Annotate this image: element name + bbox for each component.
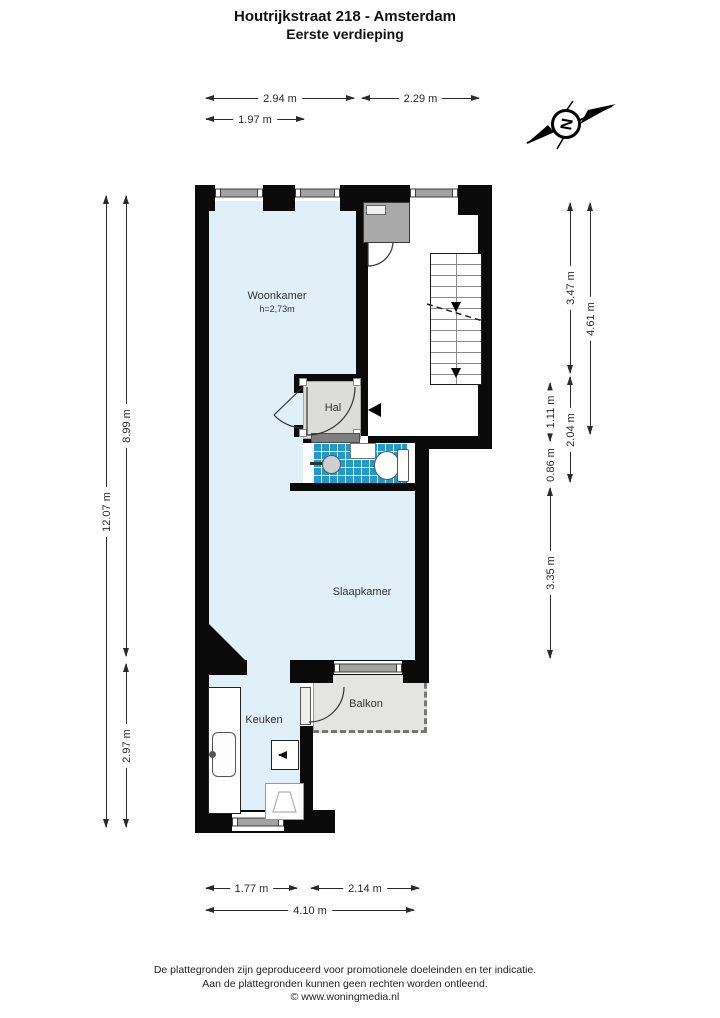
dimension-top-1: 2.94 m — [205, 94, 355, 104]
washbasin — [322, 455, 341, 474]
wall — [290, 660, 333, 683]
dimension-right-2: 4.61 m — [586, 202, 596, 435]
meter-cabinet — [363, 202, 410, 243]
stairs-divider — [456, 254, 457, 384]
dimension-top-3: 1.97 m — [205, 115, 305, 125]
page-subtitle: Eerste verdieping — [0, 26, 690, 42]
dimension-right-1: 3.47 m — [566, 202, 576, 374]
room-label-slaapkamer: Slaapkamer — [333, 586, 392, 598]
window-frame — [334, 663, 402, 672]
window-frame — [215, 189, 263, 198]
compass-north-icon: N — [526, 101, 616, 149]
door-swing-arc — [368, 242, 393, 266]
slaapkamer-floor — [209, 491, 415, 675]
window — [334, 661, 402, 674]
title-block: Houtrijkstraat 218 - Amsterdam Eerste ve… — [0, 8, 690, 42]
toilet-tank — [397, 449, 409, 482]
wall — [195, 185, 209, 833]
window-frame — [410, 189, 458, 198]
dimension-right-3: 1.11 m — [546, 382, 556, 442]
disclaimer-line-2: Aan de plattegronden kunnen geen rechten… — [0, 978, 690, 992]
dimension-bottom-3: 4.10 m — [205, 906, 415, 916]
ceiling-height-note: h=2,73m — [259, 304, 294, 314]
room-label-hal: Hal — [325, 402, 342, 414]
door-frame — [353, 378, 361, 386]
bathroom-door — [311, 433, 360, 443]
compass-arrowhead — [580, 104, 616, 124]
dimension-right-4: 0.86 m — [546, 442, 556, 487]
window-frame — [295, 189, 340, 198]
dimension-left-2: 8.99 m — [122, 195, 132, 657]
stairs-down-arrow-icon — [451, 368, 461, 378]
dimension-top-2: 2.29 m — [361, 94, 480, 104]
page-title: Houtrijkstraat 218 - Amsterdam — [0, 8, 690, 25]
faucet-icon — [209, 751, 216, 758]
window — [215, 185, 263, 201]
entrance-arrow-icon — [368, 403, 381, 417]
dimension-bottom-2: 2.14 m — [310, 884, 420, 894]
dimension-bottom-1: 1.77 m — [205, 884, 298, 894]
wall — [415, 436, 429, 676]
dimension-right-5: 2.04 m — [566, 376, 576, 483]
compass-letter: N — [556, 117, 575, 131]
door-frame — [299, 378, 307, 386]
compass-tail — [526, 125, 554, 144]
stairs-down-arrow-icon — [451, 302, 461, 312]
room-label-woonkamer: Woonkamer — [247, 290, 306, 302]
copyright-line: © www.woningmedia.nl — [0, 991, 690, 1005]
room-label-keuken: Keuken — [245, 714, 282, 726]
boiler-icon — [278, 751, 287, 759]
disclaimer-block: De plattegronden zijn geproduceerd voor … — [0, 964, 690, 1005]
hand-basin — [350, 443, 376, 459]
dimension-left-3: 2.97 m — [122, 663, 132, 828]
window — [295, 185, 340, 201]
cabinet-shelf — [366, 205, 386, 215]
dimension-left-1: 12.07 m — [102, 195, 112, 828]
wall — [290, 483, 429, 491]
balcony-door — [300, 687, 311, 725]
wall — [263, 185, 295, 211]
disclaimer-line-1: De plattegronden zijn geproduceerd voor … — [0, 964, 690, 978]
wall — [368, 436, 415, 443]
wall — [403, 660, 429, 683]
room-label-balkon: Balkon — [349, 698, 383, 710]
stove-unit — [265, 783, 304, 820]
door-frame — [299, 429, 307, 437]
wall — [195, 660, 247, 675]
dimension-right-6: 3.35 m — [546, 487, 556, 659]
floorplan-page: Houtrijkstraat 218 - Amsterdam Eerste ve… — [0, 0, 720, 1018]
stairs-down — [430, 253, 482, 385]
boiler-unit — [271, 740, 299, 770]
window — [410, 185, 458, 201]
